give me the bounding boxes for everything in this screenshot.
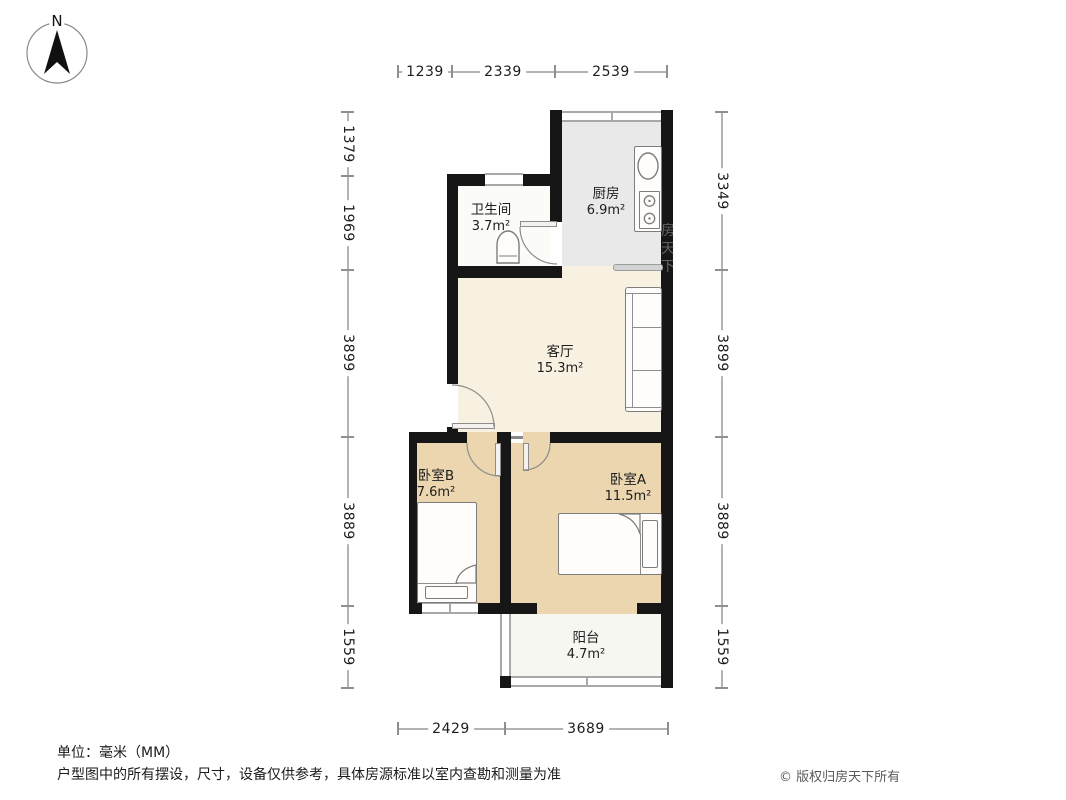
dim-tick: [397, 722, 399, 735]
sink-basin: [638, 153, 658, 179]
plan-detail-overlay: [0, 0, 1066, 800]
room-name: 卧室A: [580, 472, 676, 489]
dim-label: 3889: [714, 498, 730, 544]
room-name: 阳台: [538, 630, 634, 647]
dim-label: 2539: [588, 64, 634, 80]
dim-tick: [341, 687, 354, 689]
dim-label: 1969: [340, 200, 356, 246]
bedroomB-blanket-fold: [456, 565, 476, 583]
dim-tick: [554, 65, 556, 78]
dim-tick: [341, 605, 354, 607]
dim-line-left: [347, 112, 349, 688]
dim-label: 1559: [714, 624, 730, 670]
dim-label: 1379: [340, 121, 356, 167]
unit-note: 单位：毫米（MM）: [57, 742, 179, 762]
dim-label: 3689: [563, 721, 609, 737]
room-area: 4.7m²: [538, 647, 634, 663]
dim-tick: [715, 269, 728, 271]
dim-tick: [715, 687, 728, 689]
room-label-balcony: 阳台 4.7m²: [538, 630, 634, 663]
dim-label: 1239: [402, 64, 448, 80]
room-name: 卧室B: [388, 468, 484, 485]
dim-tick: [341, 111, 354, 113]
bedroomA-door-arc: [524, 443, 550, 470]
dim-tick: [666, 65, 668, 78]
room-area: 3.7m²: [443, 219, 539, 235]
dim-tick: [715, 436, 728, 438]
dim-label: 2429: [428, 721, 474, 737]
room-label-bathroom: 卫生间 3.7m²: [443, 202, 539, 235]
copyright-note: © 版权归房天下所有: [779, 766, 900, 785]
dim-label: 1559: [340, 624, 356, 670]
entry-door-arc: [452, 385, 494, 427]
room-label-kitchen: 厨房 6.9m²: [558, 186, 654, 219]
dim-tick: [341, 269, 354, 271]
room-label-living: 客厅 15.3m²: [512, 344, 608, 377]
dim-label: 3899: [714, 330, 730, 376]
watermark-text: 房天下: [660, 222, 676, 277]
room-name: 厨房: [558, 186, 654, 203]
dim-tick: [451, 65, 453, 78]
dim-tick: [341, 436, 354, 438]
dim-tick: [715, 605, 728, 607]
disclaimer-note: 户型图中的所有摆设，尺寸，设备仅供参考，具体房源标准以室内查勘和测量为准: [57, 764, 561, 784]
bedroomA-blanket-fold: [619, 514, 640, 534]
room-label-bedroomA: 卧室A 11.5m²: [580, 472, 676, 505]
room-name: 客厅: [512, 344, 608, 361]
room-area: 15.3m²: [512, 361, 608, 377]
dim-tick: [341, 175, 354, 177]
dim-label: 2339: [480, 64, 526, 80]
room-name: 卫生间: [443, 202, 539, 219]
room-area: 6.9m²: [558, 203, 654, 219]
dim-label: 3899: [340, 330, 356, 376]
dim-tick: [504, 722, 506, 735]
dim-tick: [397, 65, 399, 78]
dim-label: 3889: [340, 498, 356, 544]
dim-tick: [715, 111, 728, 113]
room-area: 7.6m²: [388, 485, 484, 501]
room-area: 11.5m²: [580, 489, 676, 505]
dim-tick: [667, 722, 669, 735]
room-label-bedroomB: 卧室B 7.6m²: [388, 468, 484, 501]
dim-label: 3349: [714, 168, 730, 214]
floorplan-canvas: N: [0, 0, 1066, 800]
toilet: [497, 231, 519, 263]
